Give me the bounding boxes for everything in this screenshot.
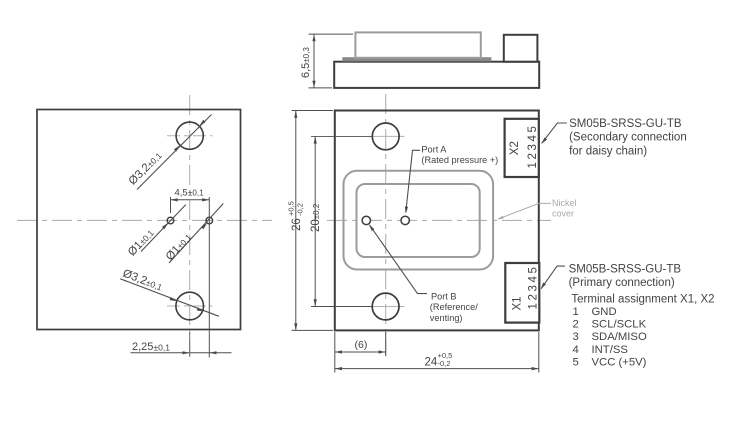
- svg-text:2,25: 2,25: [132, 341, 153, 353]
- svg-text:VCC (+5V): VCC (+5V): [592, 357, 647, 369]
- svg-text:12345: 12345: [527, 124, 539, 169]
- svg-text:Terminal assignment X1, X2: Terminal assignment X1, X2: [571, 294, 714, 306]
- svg-text:3: 3: [573, 331, 579, 343]
- svg-text:Port A: Port A: [421, 145, 447, 155]
- svg-text:venting): venting): [430, 313, 463, 323]
- svg-text:1: 1: [573, 306, 579, 318]
- svg-text:4: 4: [573, 344, 579, 356]
- svg-text:SDA/MISO: SDA/MISO: [592, 331, 647, 343]
- svg-text:X1: X1: [512, 296, 524, 310]
- svg-text:5: 5: [573, 357, 579, 369]
- svg-text:(Reference/: (Reference/: [430, 302, 478, 312]
- svg-text:20±0,2: 20±0,2: [310, 203, 322, 232]
- svg-text:2: 2: [573, 319, 579, 331]
- svg-text:(Secondary connection: (Secondary connection: [569, 132, 687, 144]
- svg-text:6,5±0,3: 6,5±0,3: [300, 47, 312, 78]
- svg-text:cover: cover: [552, 208, 574, 218]
- svg-text:Nickel: Nickel: [552, 198, 577, 208]
- svg-text:INT/SS: INT/SS: [592, 344, 629, 356]
- svg-text:SM05B-SRSS-GU-TB: SM05B-SRSS-GU-TB: [569, 118, 682, 130]
- svg-text:(6): (6): [355, 339, 368, 351]
- svg-text:X2: X2: [509, 141, 521, 155]
- svg-text:(Rated pressure +): (Rated pressure +): [421, 155, 498, 165]
- svg-text:26: 26: [291, 218, 303, 231]
- svg-text:±0,1: ±0,1: [154, 342, 171, 352]
- svg-text:24: 24: [425, 356, 438, 368]
- svg-text:+0,5: +0,5: [286, 201, 295, 216]
- svg-text:SCL/SCLK: SCL/SCLK: [592, 319, 647, 331]
- svg-text:4,5: 4,5: [175, 187, 188, 198]
- svg-text:GND: GND: [592, 306, 617, 318]
- svg-text:±0,1: ±0,1: [188, 188, 204, 197]
- svg-text:12345: 12345: [528, 265, 540, 310]
- svg-text:Port B: Port B: [431, 291, 457, 301]
- svg-text:-0,2: -0,2: [438, 359, 451, 368]
- svg-text:SM05B-SRSS-GU-TB: SM05B-SRSS-GU-TB: [569, 264, 682, 276]
- svg-text:-0,2: -0,2: [295, 203, 304, 216]
- svg-text:for daisy chain): for daisy chain): [569, 145, 647, 157]
- svg-text:(Primary connection): (Primary connection): [569, 277, 675, 289]
